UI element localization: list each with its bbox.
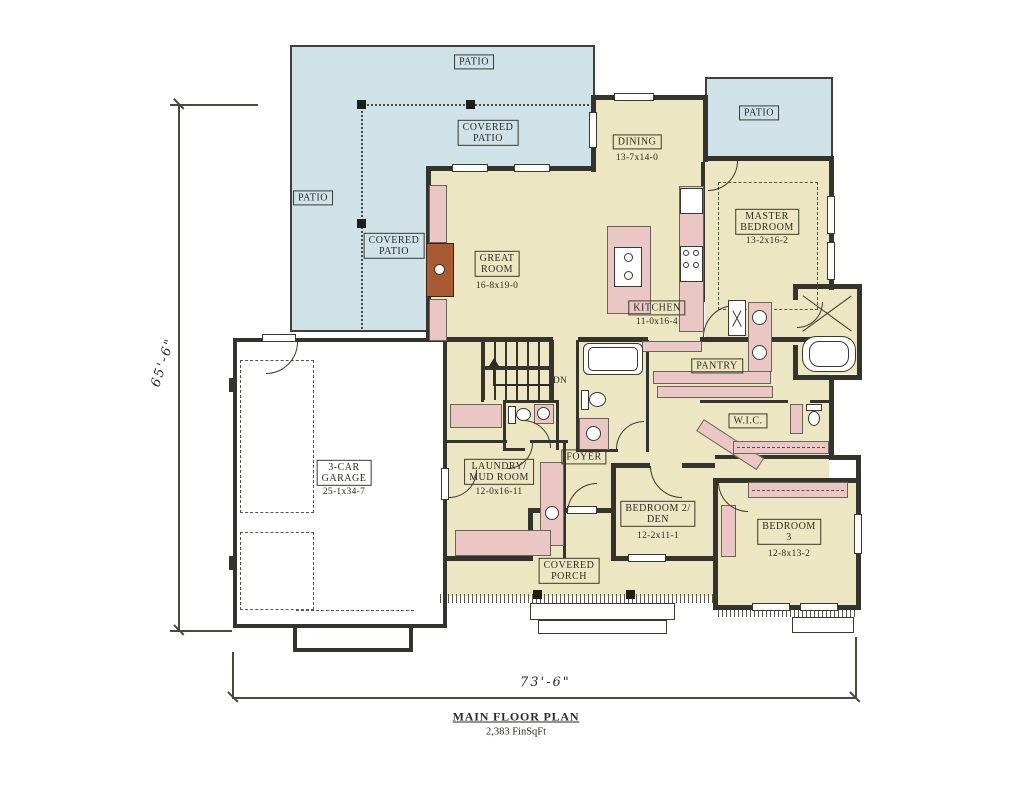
stairs-dn-label: DN — [553, 376, 567, 386]
dims-bedroom2: 12-2x11-1 — [637, 531, 679, 541]
window — [827, 242, 835, 280]
plan-title: MAIN FLOOR PLAN — [453, 710, 580, 725]
kitchen-counter-return — [642, 341, 702, 352]
bathtub-inner — [588, 347, 638, 371]
garage-wall-jamb — [229, 378, 237, 392]
label-patio-top: PATIO — [454, 54, 494, 69]
stair-direction-line — [493, 384, 551, 386]
foundation-hatch — [718, 610, 858, 617]
burner — [683, 250, 689, 256]
label-covered-patio-left: COVERED PATIO — [364, 233, 425, 259]
dims-great-room: 16-8x19-0 — [476, 281, 518, 291]
wall-segment — [578, 337, 648, 342]
dims-garage: 25-1x34-7 — [323, 487, 365, 497]
label-laundry: LAUNDRY/ MUD ROOM — [464, 459, 534, 485]
label-patio-right: PATIO — [739, 105, 779, 120]
wall-segment — [447, 440, 507, 443]
closet-shelf — [721, 505, 736, 557]
built-in-cabinet — [429, 299, 447, 341]
label-dining: DINING — [613, 134, 662, 149]
label-master-bedroom: MASTER BEDROOM — [735, 209, 799, 235]
window — [827, 196, 835, 234]
stair-arrow-head — [489, 358, 499, 366]
floor-bed3-hall — [703, 458, 829, 478]
label-kitchen: KITCHEN — [628, 300, 685, 315]
label-bedroom2: BEDROOM 2/ DEN — [620, 501, 695, 527]
dims-laundry: 12-0x16-11 — [476, 487, 523, 497]
garage-dashed-line — [296, 610, 414, 612]
porch-post — [626, 590, 635, 599]
window — [854, 514, 862, 554]
laundry-counter — [455, 530, 551, 556]
wall-segment — [713, 478, 718, 609]
mudroom-bench — [450, 404, 502, 428]
dimension-extension — [170, 104, 258, 106]
wall-segment — [810, 400, 832, 403]
label-garage: 3-CAR GARAGE — [317, 460, 372, 486]
garage-car-space — [240, 532, 314, 610]
built-in-cabinet — [429, 185, 447, 243]
wall-segment — [715, 455, 829, 459]
porch-step — [538, 620, 667, 634]
wall-segment — [703, 95, 708, 162]
label-foyer: FOYER — [561, 449, 606, 464]
patio-post — [357, 219, 366, 228]
garage-door-gap — [441, 468, 449, 500]
wall-segment — [829, 375, 834, 458]
bath-cabinet — [790, 404, 803, 434]
sink — [752, 345, 767, 360]
window — [452, 164, 488, 172]
wall-segment — [611, 463, 650, 468]
label-covered-patio-top: COVERED PATIO — [458, 120, 519, 146]
rear-stoop — [792, 617, 854, 633]
burner — [693, 262, 699, 268]
closet-rod — [737, 447, 825, 449]
dimension-extension — [232, 652, 234, 698]
burner — [624, 271, 633, 280]
wall-segment — [611, 463, 616, 561]
linen-closet — [728, 300, 746, 336]
label-pantry: PANTRY — [691, 358, 743, 373]
covered-patio-boundary — [363, 104, 593, 106]
label-great-room: GREAT ROOM — [475, 251, 520, 277]
garage-car-space — [240, 360, 314, 513]
sink — [537, 407, 550, 420]
burner — [683, 262, 689, 268]
patio-post — [357, 100, 366, 109]
wall-segment — [793, 345, 798, 380]
label-patio-left: PATIO — [293, 190, 333, 205]
label-wic: W.I.C. — [728, 413, 767, 428]
fireplace-insert — [434, 264, 445, 275]
toilet-tank — [806, 404, 822, 411]
porch-edge-hatch — [440, 594, 718, 603]
dims-kitchen: 11-0x16-4 — [636, 317, 678, 327]
dimension-line-left — [178, 105, 180, 632]
window — [614, 93, 654, 101]
toilet-bowl — [589, 392, 606, 407]
burner — [624, 253, 633, 262]
garage-bump-out — [293, 624, 413, 652]
burner — [693, 250, 699, 256]
garage-wall-jamb — [229, 556, 237, 570]
label-bedroom3: BEDROOM 3 — [757, 519, 821, 545]
dims-bedroom3: 12-8x13-2 — [768, 549, 810, 559]
toilet-tank — [508, 406, 516, 424]
pantry-shelf — [657, 386, 773, 398]
closet-rod — [752, 490, 844, 492]
label-covered-porch: COVERED PORCH — [539, 558, 600, 584]
dims-dining: 13-7x14-0 — [616, 153, 658, 163]
window — [514, 164, 550, 172]
dims-master: 13-2x16-2 — [746, 236, 788, 246]
bathtub-inner — [809, 341, 849, 367]
toilet-bowl — [808, 411, 820, 426]
sink — [752, 310, 767, 325]
wall-segment — [793, 375, 862, 380]
dimension-bottom-text: 73'-6" — [520, 675, 571, 690]
window — [589, 112, 597, 148]
sink — [586, 426, 601, 441]
wall-segment — [700, 400, 788, 403]
covered-patio-boundary — [361, 104, 363, 332]
dimension-left-text: 65'-6" — [148, 336, 178, 389]
dimension-line-bottom — [232, 697, 856, 699]
laundry-sink — [545, 506, 559, 520]
dimension-extension — [855, 637, 857, 698]
wall-segment — [857, 284, 862, 380]
garage-entry-door-gap — [262, 334, 296, 342]
porch-step — [530, 603, 675, 620]
floor-plan: DN — [0, 0, 1024, 791]
master-ceiling-dashed — [718, 182, 818, 310]
wall-segment — [682, 463, 715, 468]
refrigerator — [680, 188, 703, 214]
wall-segment — [443, 556, 533, 561]
patio-post — [466, 100, 475, 109]
toilet-tank — [581, 390, 589, 410]
porch-post — [533, 590, 542, 599]
plan-area: 2,383 FinSqFt — [486, 727, 546, 738]
window — [628, 554, 666, 562]
wall-segment — [646, 340, 649, 452]
